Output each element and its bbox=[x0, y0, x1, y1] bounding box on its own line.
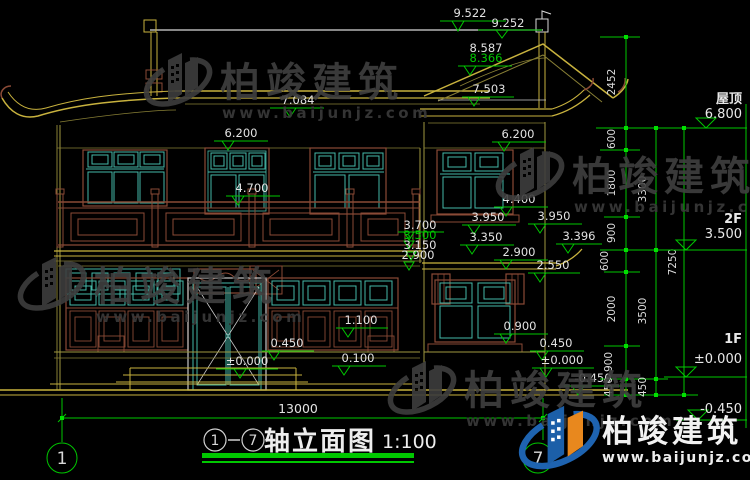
spot-elevation-label: 6.200 bbox=[502, 127, 535, 141]
spot-elevation-label: 6.200 bbox=[225, 126, 258, 140]
watermark-name: 柏竣建筑 bbox=[464, 368, 648, 414]
title-underline bbox=[202, 453, 414, 458]
level-roof-label: 屋顶 bbox=[716, 92, 742, 107]
chain-dim: 600 bbox=[599, 251, 611, 271]
drawing-title: 轴立面图 bbox=[264, 426, 376, 457]
spot-elevation-label: 3.950 bbox=[538, 209, 571, 223]
spot-elevation-label: 3.396 bbox=[563, 229, 596, 243]
spot-elevation-label: 8.366 bbox=[470, 51, 503, 65]
balcony-railing bbox=[56, 189, 420, 247]
level-1f-label: 1F bbox=[724, 332, 742, 347]
level-1f-value: ±0.000 bbox=[694, 352, 742, 367]
watermark-name: 柏竣建筑 bbox=[94, 264, 278, 310]
spot-elevation-label: 2.900 bbox=[503, 245, 536, 259]
spot-elevation-label: 7.503 bbox=[473, 82, 506, 96]
watermark-url: www.baijunjz.com bbox=[574, 198, 750, 216]
spot-elevation-label: ±0.000 bbox=[541, 353, 584, 367]
spot-elevation-label: ±0.000 bbox=[226, 354, 269, 368]
level-2f-value: 3.500 bbox=[705, 227, 742, 242]
chain-dim: 7250 bbox=[667, 249, 679, 276]
spot-elevation-label: 0.900 bbox=[504, 319, 537, 333]
watermark-name: 柏竣建筑 bbox=[572, 154, 750, 200]
elevation-drawing: 9.522 9.252 8.587 8.366 7.503 7.084 6.20… bbox=[0, 0, 750, 480]
spot-elevation-label: 9.252 bbox=[492, 16, 525, 30]
watermark-name: 柏竣建筑 bbox=[220, 60, 404, 106]
drawing-scale: 1:100 bbox=[382, 431, 437, 453]
cad-viewport: 9.522 9.252 8.587 8.366 7.503 7.084 6.20… bbox=[0, 0, 750, 480]
chain-dim: 900 bbox=[606, 223, 618, 243]
spot-elevation-label: 3.950 bbox=[472, 210, 505, 224]
spot-elevation-label: 1.100 bbox=[345, 313, 378, 327]
title-underline-thin bbox=[202, 461, 414, 463]
spot-elevation-label: 2.550 bbox=[537, 258, 570, 272]
watermark-url: www.baijunjz.com bbox=[96, 308, 305, 326]
spot-elevation-label: 2.900 bbox=[402, 248, 435, 262]
overall-width-dim: 13000 bbox=[278, 401, 318, 416]
title-axis-end: 7 bbox=[249, 433, 258, 449]
spot-elevation-label: 0.450 bbox=[540, 336, 573, 350]
second-floor-windows bbox=[83, 148, 519, 222]
chain-dim: 3500 bbox=[637, 298, 649, 325]
spot-elevation-label: 4.700 bbox=[236, 181, 269, 195]
spot-elevation-label: 9.522 bbox=[454, 6, 487, 20]
dimension-ticks bbox=[624, 35, 686, 397]
brand-logo: 柏竣建筑 www.baijunjz.com bbox=[514, 403, 750, 476]
watermark-url: www.baijunjz.com bbox=[222, 104, 431, 122]
axis-bubble-1-label: 1 bbox=[57, 449, 68, 469]
drawing-title-block: 1 7 轴立面图 1:100 bbox=[202, 426, 437, 463]
watermark: 柏竣建筑 www.baijunjz.com bbox=[140, 51, 432, 122]
chain-dim: 2452 bbox=[606, 69, 618, 96]
spot-elevation-label: 0.450 bbox=[271, 336, 304, 350]
brand-logo-url: www.baijunjz.com bbox=[602, 450, 750, 466]
brand-logo-name: 柏竣建筑 bbox=[602, 414, 742, 450]
spot-elevation-label: 3.350 bbox=[470, 230, 503, 244]
title-axis-start: 1 bbox=[211, 433, 220, 449]
chain-dim: 2000 bbox=[606, 296, 618, 323]
spot-elevation-label: 0.100 bbox=[342, 351, 375, 365]
level-roof-value: 6.800 bbox=[705, 107, 742, 122]
chain-dim: 600 bbox=[606, 129, 618, 149]
